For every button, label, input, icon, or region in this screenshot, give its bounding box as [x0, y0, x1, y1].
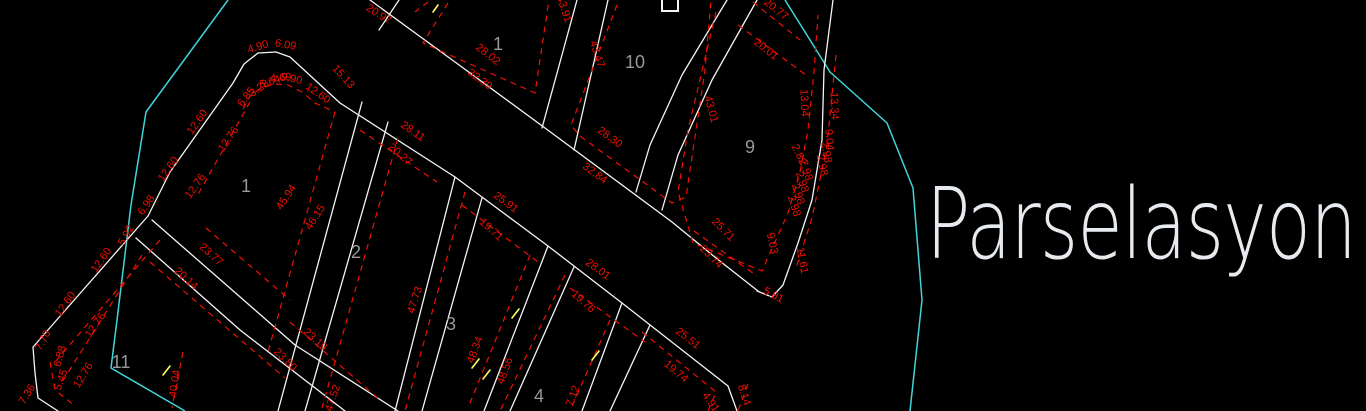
- parcel-number: 2: [351, 242, 361, 262]
- dimension-label: 25.51: [673, 325, 702, 351]
- dimension-label: 9.03: [764, 232, 780, 255]
- dimension-label: 20.77: [761, 0, 790, 23]
- survey-marker-square: [662, 0, 678, 11]
- dimension-label: 12.60: [53, 290, 79, 319]
- red-dimension-lines: [50, 0, 836, 411]
- dimension-label: 12.60: [89, 246, 115, 275]
- dimension-label: 45.94: [274, 183, 299, 213]
- parcel-number: 11: [112, 352, 131, 372]
- dimension-label: 7.12: [564, 384, 583, 408]
- dimension-label: 23.19: [301, 326, 329, 353]
- parcel-number: 1: [241, 176, 251, 196]
- dimension-label: 43.91: [554, 0, 574, 24]
- dimension-label: 19.71: [477, 216, 505, 243]
- dimension-label: 20.01: [751, 36, 780, 62]
- dimension-label: 28.01: [583, 257, 612, 283]
- dimension-label: 4.91: [699, 390, 721, 411]
- dimension-label: 9.04: [822, 129, 836, 151]
- dimension-label: 46.15: [303, 203, 328, 233]
- dimension-label: 8.14: [735, 383, 753, 407]
- dimension-label: 32.39: [465, 67, 494, 93]
- dimension-label: 28.11: [398, 119, 427, 144]
- dimension-label: 6.98: [135, 193, 157, 217]
- dimension-label: 40.04: [167, 369, 183, 398]
- dimension-label: 19.76: [569, 288, 597, 315]
- dimension-label: 7.70: [33, 328, 54, 353]
- cad-parcellation-view: 20.9728.0232.3943.9143.4720.7720.0143.01…: [0, 0, 1366, 411]
- dimension-label: 5.81: [761, 285, 786, 306]
- dimension-label: 12.76: [183, 172, 209, 201]
- dimension-label: 6.88: [52, 344, 69, 368]
- dimension-label: 43.01: [702, 94, 721, 124]
- dimension-label: 15.13: [330, 63, 357, 91]
- dimension-label: 43.47: [587, 39, 607, 69]
- dimension-label: 13.04: [798, 89, 811, 117]
- dimension-label: 6.09: [274, 37, 297, 53]
- dimension-label: 12.76: [71, 361, 96, 391]
- title-text: Parselasyon: [926, 168, 1356, 282]
- dimension-label: 23.77: [197, 241, 225, 268]
- parcel-number: 9: [745, 137, 755, 157]
- parcellation-canvas: 20.9728.0232.3943.9143.4720.7720.0143.01…: [0, 0, 1366, 411]
- dimension-label: 25.71: [709, 216, 737, 244]
- dimension-label: 48.34: [465, 335, 486, 365]
- dimension-label: 12.60: [185, 108, 211, 137]
- dimension-label: 11.61: [794, 246, 810, 274]
- dimension-label: 47.73: [405, 285, 425, 315]
- dimension-label: 12.76: [216, 125, 242, 154]
- dimension-label: 9.90: [280, 71, 303, 87]
- dimension-label: 20.14: [172, 265, 200, 292]
- dimension-label: 12.60: [156, 155, 182, 184]
- parcel-number-labels: 1109123411: [112, 34, 755, 406]
- dimension-label: 5.92: [116, 223, 137, 248]
- parcel-number: 4: [534, 386, 544, 406]
- parcel-number: 10: [625, 52, 645, 72]
- parcel-number: 1: [493, 34, 503, 54]
- yellow-tick-marks: [163, 5, 599, 379]
- dimension-label: 28.30: [595, 125, 624, 151]
- dimension-label: 5.45: [52, 368, 71, 392]
- dimension-label: 7.36: [17, 382, 39, 407]
- dimension-label: 23.74: [697, 243, 725, 271]
- dimension-label: 25.91: [491, 190, 520, 216]
- dimension-label: 19.74: [662, 358, 691, 385]
- dimension-label: 12.60: [303, 81, 332, 107]
- dimension-label: 13.34: [828, 92, 841, 120]
- dimension-label: 48.56: [495, 356, 516, 386]
- dimension-labels: 20.9728.0232.3943.9143.4720.7720.0143.01…: [17, 0, 841, 411]
- parcel-number: 3: [446, 314, 456, 334]
